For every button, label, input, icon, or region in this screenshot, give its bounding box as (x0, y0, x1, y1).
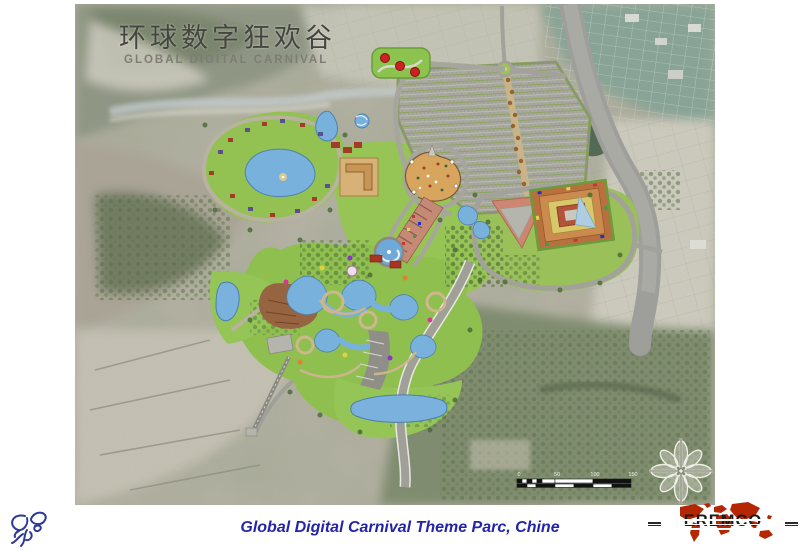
scale-label: 0 (517, 472, 520, 478)
logo-stripe (648, 524, 798, 526)
bee-sketch-icon (6, 506, 52, 548)
map-image: 0 50 100 150 (75, 4, 715, 505)
logo-stripe (648, 528, 798, 530)
eremco-logo: EREMCO (648, 501, 798, 549)
scale-label: 50 (554, 472, 560, 478)
map-title-chinese: 环球数字狂欢谷 (119, 16, 336, 55)
north-garden (372, 48, 430, 78)
map-title-english: GLOBAL DIGITAL CARNIVAL (124, 54, 328, 66)
scale-label: 150 (628, 472, 637, 478)
scale-label: 100 (590, 472, 599, 478)
logo-stripe (648, 519, 798, 521)
slide: 0 50 100 150 (0, 0, 800, 550)
